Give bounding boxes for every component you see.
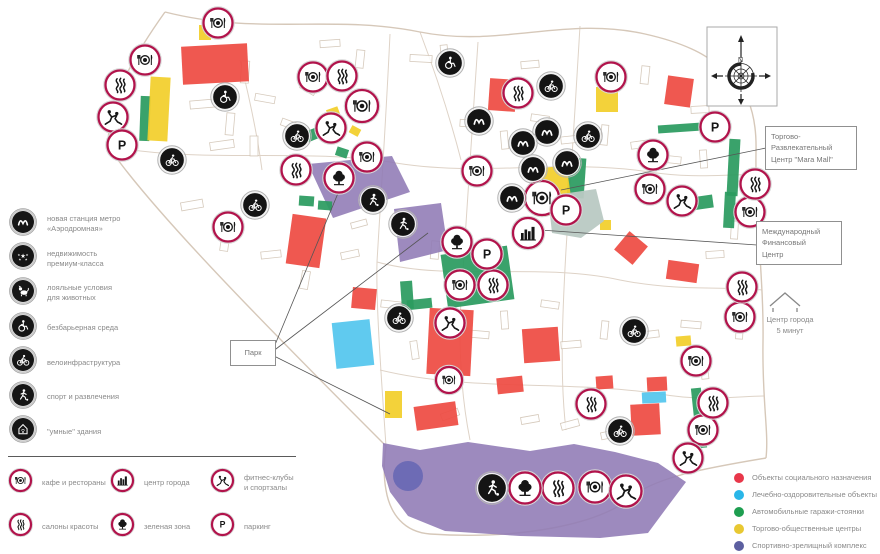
- building-social: [351, 287, 377, 310]
- building-social: [630, 403, 661, 435]
- legend-feature-item: спорт и развлечения: [8, 380, 120, 415]
- legend-places: кафе и рестораны центр города фитнес-клу…: [6, 466, 306, 544]
- legend-place-label: зеленая зона: [144, 522, 190, 532]
- legend-zone-item: Автомобильные гаражи-стоянки: [734, 503, 877, 520]
- background-building: [355, 50, 365, 69]
- legend-zone-item: Объекты социального назначения: [734, 469, 877, 486]
- building-social: [666, 260, 699, 283]
- map-marker-runner-icon: [476, 472, 508, 504]
- zone-label: Автомобильные гаражи-стоянки: [752, 507, 864, 516]
- building-social: [496, 376, 524, 395]
- map-marker-tree-icon: [637, 139, 669, 171]
- map-marker-fitness-icon: [666, 185, 698, 217]
- stars-icon: [8, 241, 38, 271]
- background-building: [340, 249, 359, 260]
- legend-zone-item: Спортивно-зрелищный комплекс: [734, 537, 877, 554]
- map-marker-metro-icon: [519, 155, 547, 183]
- legend-feature-item: новая станция метро «Аэродромная»: [8, 207, 120, 242]
- legend-features: новая станция метро «Аэродромная» недвиж…: [8, 207, 120, 449]
- building-retail: [147, 77, 170, 142]
- city-icon: [108, 466, 137, 495]
- background-building: [521, 60, 540, 69]
- legend-place-item: кафе и рестораны: [6, 466, 108, 500]
- map-marker-metro-icon: [509, 129, 537, 157]
- building-retail: [349, 125, 362, 137]
- building-garage: [299, 195, 315, 206]
- map-marker-salon-icon: [502, 77, 534, 109]
- zone-label: Объекты социального назначения: [752, 473, 871, 482]
- background-building: [410, 341, 419, 360]
- legend-feature-item: "умные" здания: [8, 415, 120, 450]
- building-retail: [385, 391, 402, 418]
- legend-place-item: зеленая зона: [108, 510, 208, 544]
- map-marker-salon-icon: [726, 271, 758, 303]
- financial-center-label-box: Международный Финансовый Центр: [756, 221, 842, 265]
- map-marker-fitness-icon: [315, 112, 347, 144]
- map-marker-tree-icon: [323, 162, 355, 194]
- map-marker-cafe-icon: [212, 211, 244, 243]
- map-marker-metro-icon: [498, 184, 526, 212]
- background-building: [561, 340, 582, 349]
- background-building: [210, 139, 235, 150]
- map-marker-bike-icon: [606, 417, 634, 445]
- legend-feature-item: недвижимость премиум-класса: [8, 242, 120, 277]
- building-social: [522, 327, 560, 363]
- building-garage: [318, 201, 333, 211]
- wheel-icon: [8, 311, 38, 341]
- map-marker-salon-icon: [280, 154, 312, 186]
- map-marker-parking-icon: [471, 238, 503, 270]
- building-social: [414, 401, 459, 431]
- smarthome-icon: [8, 414, 38, 444]
- legend-feature-label: новая станция метро «Аэродромная»: [47, 214, 120, 234]
- map-marker-salon-icon: [477, 269, 509, 301]
- background-building: [180, 199, 203, 211]
- legend-zone-item: Лечебно-оздоровительные объекты: [734, 486, 877, 503]
- background-building: [600, 125, 609, 146]
- legend-zones: Объекты социального назначения Лечебно-о…: [734, 469, 877, 554]
- map-marker-fitness-icon: [97, 101, 129, 133]
- zone-color-dot: [734, 490, 744, 500]
- map-marker-salon-icon: [326, 60, 358, 92]
- background-building: [521, 414, 540, 424]
- map-marker-bike-icon: [283, 122, 311, 150]
- legend-feature-label: спорт и развлечения: [47, 392, 119, 402]
- compass-rose: N: [707, 27, 777, 106]
- legend-feature-label: "умные" здания: [47, 427, 101, 437]
- fitness-icon: [208, 466, 237, 495]
- park-label-box: Парк: [230, 340, 276, 366]
- legend-place-item: салоны красоты: [6, 510, 108, 544]
- map-marker-salon-icon: [697, 387, 729, 419]
- parking-icon: [208, 510, 237, 539]
- background-building: [471, 330, 490, 339]
- building-social: [181, 43, 249, 84]
- building-retail: [676, 335, 692, 346]
- mara-mall-label-box: Торгово- Развлекательный Центр "Mara Mal…: [765, 126, 857, 170]
- background-building: [255, 93, 276, 103]
- building-social: [286, 214, 327, 268]
- map-marker-salon-icon: [575, 388, 607, 420]
- legend-feature-label: безбарьерная среда: [47, 323, 118, 333]
- map-marker-fitness-icon: [609, 474, 643, 508]
- map-marker-cafe-icon: [680, 345, 712, 377]
- background-building: [600, 321, 609, 340]
- map-marker-metro-icon: [553, 149, 581, 177]
- cafe-icon: [6, 466, 35, 495]
- map-marker-bike-icon: [158, 146, 186, 174]
- legend-place-item: фитнес-клубы и спортзалы: [208, 466, 304, 500]
- map-marker-cafe-icon: [297, 61, 329, 93]
- map-marker-wheel-icon: [436, 49, 464, 77]
- background-building: [699, 150, 707, 168]
- zone-color-dot: [734, 507, 744, 517]
- legend-feature-item: лояльные условия для животных: [8, 276, 120, 311]
- building-social: [596, 375, 614, 389]
- compass-north-label: N: [738, 57, 743, 64]
- building-social: [647, 376, 668, 391]
- background-building: [225, 113, 235, 136]
- map-marker-salon-icon: [541, 471, 575, 505]
- background-building: [261, 250, 282, 259]
- legend-divider: [8, 456, 296, 457]
- legend-place-item: центр города: [108, 466, 208, 500]
- map-marker-fitness-icon: [434, 307, 466, 339]
- dog-icon: [8, 276, 38, 306]
- map-marker-fitness-icon: [672, 442, 704, 474]
- legend-feature-label: лояльные условия для животных: [47, 283, 112, 303]
- legend-place-label: фитнес-клубы и спортзалы: [244, 473, 294, 493]
- map-marker-parking-icon: [550, 194, 582, 226]
- background-building: [560, 419, 579, 430]
- legend-feature-label: недвижимость премиум-класса: [47, 249, 104, 269]
- map-marker-bike-icon: [241, 191, 269, 219]
- map-marker-salon-icon: [739, 168, 771, 200]
- background-building: [640, 66, 650, 85]
- zone-color-dot: [734, 473, 744, 483]
- legend-feature-item: безбарьерная среда: [8, 311, 120, 346]
- map-marker-bike-icon: [574, 122, 602, 150]
- building-social: [664, 75, 694, 107]
- background-building: [500, 311, 508, 329]
- building-medical: [642, 391, 667, 403]
- zone-label: Торгово-общественные центры: [752, 524, 861, 533]
- legend-place-label: центр города: [144, 478, 190, 488]
- map-marker-cafe-icon: [634, 173, 666, 205]
- background-building: [250, 136, 258, 156]
- background-building: [681, 320, 702, 329]
- map-marker-cafe-icon: [434, 365, 463, 394]
- map-marker-parking-icon: [106, 129, 138, 161]
- zone-label: Лечебно-оздоровительные объекты: [752, 490, 877, 499]
- map-marker-cafe-icon: [344, 88, 379, 123]
- building-medical: [332, 319, 375, 369]
- map-marker-cafe-icon: [595, 61, 627, 93]
- background-building: [541, 300, 560, 309]
- map-marker-cafe-icon: [202, 7, 234, 39]
- map-marker-metro-icon: [465, 107, 493, 135]
- map-marker-cafe-icon: [351, 141, 383, 173]
- legend-feature-label: велоинфраструктура: [47, 358, 120, 368]
- background-building: [320, 39, 340, 47]
- map-marker-bike-icon: [620, 317, 648, 345]
- map-marker-bike-icon: [385, 304, 413, 332]
- legend-feature-item: велоинфраструктура: [8, 345, 120, 380]
- runner-icon: [8, 380, 38, 410]
- legend-place-item: паркинг: [208, 510, 304, 544]
- map-marker-wheel-icon: [211, 83, 239, 111]
- map-marker-cafe-icon: [444, 269, 476, 301]
- masterplan-poster: P: [0, 0, 880, 549]
- legend-place-label: кафе и рестораны: [42, 478, 106, 488]
- map-marker-runner-icon: [359, 186, 387, 214]
- background-building: [410, 54, 432, 62]
- zone-pond: [393, 461, 423, 491]
- background-building: [691, 106, 709, 114]
- legend-place-label: салоны красоты: [42, 522, 98, 532]
- house-icon: [770, 293, 800, 312]
- map-marker-tree-icon: [508, 471, 542, 505]
- map-marker-parking-icon: [699, 111, 731, 143]
- bike-icon: [8, 345, 38, 375]
- map-marker-runner-icon: [389, 210, 417, 238]
- background-building: [350, 219, 367, 229]
- background-building: [500, 131, 509, 150]
- legend-zone-item: Торгово-общественные центры: [734, 520, 877, 537]
- background-building: [706, 250, 724, 258]
- building-garage: [727, 139, 741, 196]
- zone-color-dot: [734, 524, 744, 534]
- building-garage: [658, 122, 702, 133]
- legend-place-label: паркинг: [244, 522, 271, 532]
- map-marker-salon-icon: [104, 69, 136, 101]
- metro-icon: [8, 207, 38, 237]
- map-marker-city-icon: [511, 216, 544, 249]
- map-marker-cafe-icon: [578, 470, 612, 504]
- map-marker-tree-icon: [441, 226, 473, 258]
- map-marker-cafe-icon: [461, 155, 493, 187]
- salon-icon: [6, 510, 35, 539]
- city-center-5min-note: Центр города 5 минут: [750, 314, 830, 337]
- zone-color-dot: [734, 541, 744, 551]
- map-marker-cafe-icon: [129, 44, 161, 76]
- tree-icon: [108, 510, 137, 539]
- map-marker-bike-icon: [537, 72, 565, 100]
